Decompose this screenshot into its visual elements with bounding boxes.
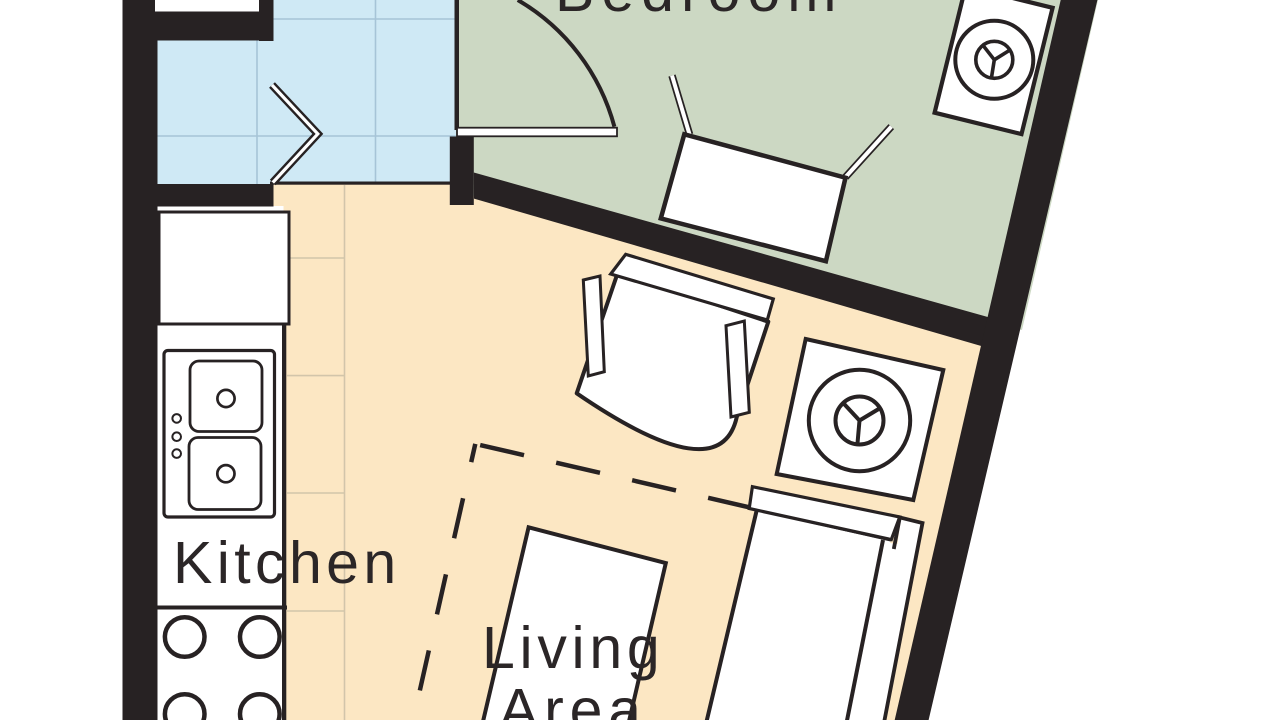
svg-text:Living: Living (482, 615, 664, 681)
svg-text:Bedroom: Bedroom (555, 0, 843, 24)
svg-text:Area: Area (499, 677, 647, 720)
svg-text:Kitchen: Kitchen (173, 530, 401, 596)
